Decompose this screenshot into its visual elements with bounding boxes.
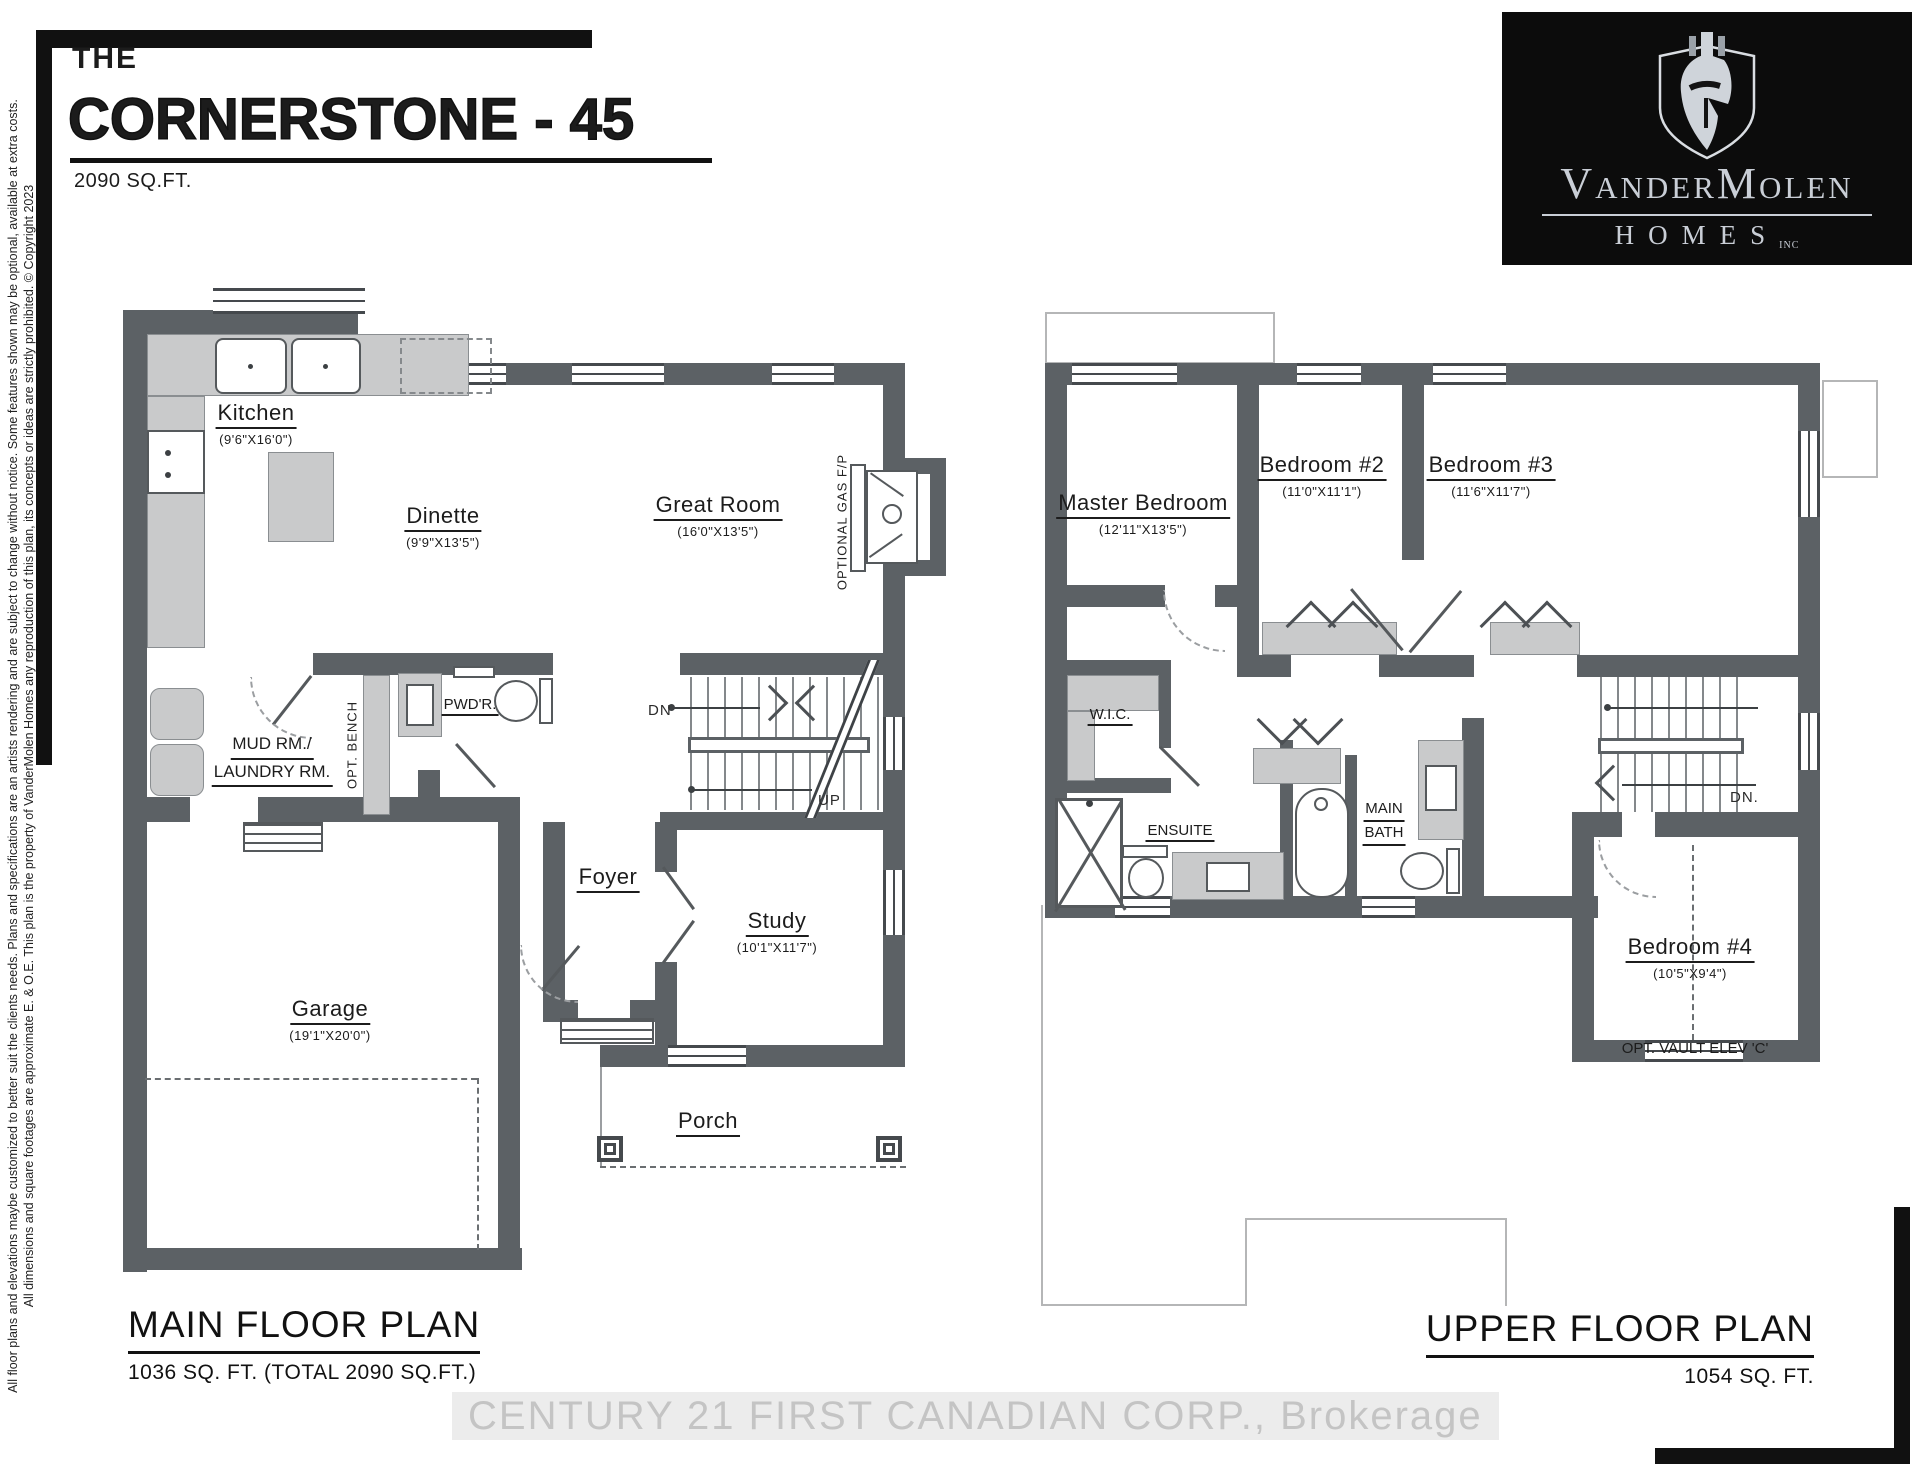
room-name: BATH: [1363, 822, 1406, 846]
wall: [498, 797, 520, 1270]
room-label-garage: Garage (19'1"X20'0"): [289, 996, 370, 1043]
towel-bar: [453, 666, 495, 678]
door-leaf: [455, 743, 496, 788]
room-label-master-bedroom: Master Bedroom (12'11"X13'5"): [1056, 490, 1230, 537]
sink-dot: [248, 364, 253, 369]
window: [572, 363, 664, 385]
wall: [1259, 655, 1291, 677]
wall: [1402, 385, 1424, 560]
wall: [600, 1045, 668, 1067]
builder-name: VanderMolen: [1502, 162, 1912, 206]
fridge-outline: [400, 338, 492, 394]
room-dims: (10'5"X9'4"): [1626, 966, 1755, 981]
toilet-bowl: [1400, 852, 1444, 890]
title-underline: [70, 158, 712, 163]
door-arc: [520, 945, 578, 1003]
shower-dot: [1086, 800, 1093, 807]
roof-line: [1505, 1220, 1507, 1306]
stairs-dn-label-upper: DN.: [1730, 789, 1759, 806]
total-sqft-label: 2090 SQ.FT.: [74, 170, 192, 193]
room-label-bedroom-4: Bedroom #4 (10'5"X9'4"): [1626, 934, 1755, 981]
wall: [1379, 655, 1412, 677]
room-name: W.I.C.: [1088, 706, 1133, 726]
window: [883, 870, 905, 935]
wall: [506, 363, 572, 385]
room-name: LAUNDRY RM.: [212, 760, 333, 788]
wall: [1159, 660, 1171, 748]
wall: [1412, 655, 1474, 677]
annotation: OPT. VAULT ELEV 'C': [1622, 1040, 1769, 1057]
kitchen-window-bump: [213, 288, 365, 314]
room-name: Kitchen: [216, 400, 297, 429]
wall: [1237, 385, 1259, 585]
range-dot: [165, 472, 171, 478]
room-name: Garage: [290, 996, 370, 1025]
window: [883, 717, 905, 770]
island: [268, 452, 334, 542]
upper-floor-plan-sqft: 1054 SQ. FT.: [1426, 1365, 1814, 1389]
wall: [1045, 585, 1165, 607]
window: [1297, 363, 1361, 385]
spartan-helmet-shield-icon: [1642, 32, 1772, 162]
room-dims: (9'6"X16'0"): [216, 432, 297, 447]
optional-gas-fireplace-label: OPTIONAL GAS F/P: [835, 454, 850, 590]
room-name: Bedroom #2: [1258, 452, 1387, 481]
room-label-dinette: Dinette (9'9"X13'5"): [404, 503, 481, 550]
roof-line: [1041, 1304, 1247, 1306]
sink-dot: [323, 364, 328, 369]
wall: [1594, 660, 1798, 677]
wall: [1655, 812, 1798, 837]
fireplace-circle: [882, 504, 902, 524]
room-name: Master Bedroom: [1056, 490, 1230, 519]
toilet-tank: [539, 678, 553, 724]
room-label-kitchen: Kitchen (9'6"X16'0"): [216, 400, 297, 447]
room-name: Porch: [676, 1108, 740, 1137]
plan-title: CORNERSTONE - 45: [68, 86, 634, 153]
garage-door-dash: [477, 1078, 481, 1250]
door-arc: [1163, 590, 1225, 652]
wall: [1798, 385, 1820, 431]
room-label-great-room: Great Room (16'0"X13'5"): [654, 492, 783, 539]
wall: [1237, 585, 1259, 677]
floor-plan-sheet: THE CORNERSTONE - 45 2090 SQ.FT. VanderM…: [0, 0, 1920, 1484]
french-door-leaf: [662, 920, 695, 964]
frame-top-left-vertical: [36, 30, 52, 765]
stair-line: [1622, 784, 1756, 786]
frame-bottom-right-vertical: [1894, 1207, 1910, 1464]
room-label-wic: W.I.C.: [1088, 706, 1133, 726]
garage-steps: [243, 822, 323, 852]
porch-post: [876, 1136, 902, 1162]
window: [1798, 431, 1820, 517]
dryer: [150, 744, 204, 796]
room-dims: (19'1"X20'0"): [289, 1028, 370, 1043]
toilet-tank: [1122, 845, 1168, 858]
disclaimer-line-1: All floor plans and elevations maybe cus…: [6, 30, 22, 1462]
hearth: [850, 464, 866, 572]
wall: [1177, 363, 1297, 385]
room-label-powder: PWD'R.: [442, 696, 499, 716]
ensuite-sink: [1206, 862, 1250, 892]
toilet-bowl: [494, 680, 538, 722]
toilet-bowl: [1128, 858, 1164, 898]
toilet-tank: [1446, 848, 1460, 894]
window: [1433, 363, 1506, 385]
porch-post: [597, 1136, 623, 1162]
opt-bench-label: OPT. BENCH: [345, 701, 360, 789]
room-label-bedroom-3: Bedroom #3 (11'6"X11'7"): [1427, 452, 1556, 499]
wall: [883, 562, 905, 717]
bath-sink: [1425, 765, 1457, 811]
window: [668, 1045, 746, 1067]
roof-line: [1245, 1218, 1507, 1220]
wall: [123, 1248, 522, 1270]
wall: [123, 797, 190, 822]
wall: [664, 363, 772, 385]
window: [1072, 363, 1177, 385]
wall: [1798, 517, 1820, 713]
window: [1798, 713, 1820, 770]
disclaimer-text: All floor plans and elevations maybe cus…: [6, 30, 37, 1462]
wall: [655, 822, 677, 872]
roof-outline: [1045, 312, 1275, 364]
room-label-foyer: Foyer: [577, 864, 640, 893]
builder-homes-label: HOMES: [1615, 220, 1780, 250]
room-name: Foyer: [577, 864, 640, 893]
french-door-leaf: [662, 866, 695, 910]
door-leaf: [1409, 590, 1463, 653]
door-arc: [1598, 840, 1656, 898]
door-arc: [250, 677, 312, 739]
builder-inc-label: INC: [1779, 240, 1799, 251]
logo-underline: [1542, 214, 1872, 216]
upper-floor-plan-title: UPPER FLOOR PLAN: [1426, 1308, 1814, 1358]
room-label-porch: Porch: [676, 1108, 740, 1137]
stair-line: [694, 789, 812, 791]
room-name: Bedroom #3: [1427, 452, 1556, 481]
room-label-bedroom-2: Bedroom #2 (11'0"X11'1"): [1258, 452, 1387, 499]
room-dims: (9'9"X13'5"): [404, 535, 481, 550]
closet-chevron: [1293, 695, 1344, 746]
main-floor-plan-title-block: MAIN FLOOR PLAN 1036 SQ. FT. (TOTAL 2090…: [128, 1304, 480, 1385]
wall: [1572, 812, 1594, 1062]
stair-line: [674, 707, 760, 709]
room-label-main-bath: MAIN BATH: [1363, 798, 1406, 846]
room-label-ensuite: ENSUITE: [1145, 822, 1214, 842]
wall: [1045, 660, 1171, 675]
room-name: Study: [746, 908, 809, 937]
room-label-mud-laundry: MUD RM./ LAUNDRY RM.: [212, 732, 333, 787]
room-dims: (16'0"X13'5"): [654, 524, 783, 539]
wall: [313, 653, 553, 675]
closet-shelf: [1253, 748, 1341, 784]
frame-bottom-right-horizontal: [1655, 1448, 1910, 1464]
room-name: Bedroom #4: [1626, 934, 1755, 963]
stair-line: [1610, 707, 1758, 709]
room-name: ENSUITE: [1145, 822, 1214, 842]
room-name: MUD RM./: [230, 732, 313, 760]
wall: [1506, 363, 1820, 385]
opt-vault-label: OPT. VAULT ELEV 'C': [1622, 1040, 1769, 1058]
wall: [1462, 718, 1484, 918]
room-dims: (11'6"X11'7"): [1427, 484, 1556, 499]
room-dims: (11'0"X11'1"): [1258, 484, 1387, 499]
roof-line: [1245, 1220, 1247, 1306]
powder-sink: [406, 684, 434, 726]
upper-floor-plan-title-block: UPPER FLOOR PLAN 1054 SQ. FT.: [1426, 1308, 1814, 1389]
room-dims: (12'11"X13'5"): [1056, 522, 1230, 537]
room-label-study: Study (10'1"X11'7"): [737, 908, 817, 955]
wall: [660, 812, 905, 830]
stair-rail: [1598, 738, 1744, 754]
washer: [150, 688, 204, 740]
wall: [1415, 896, 1598, 918]
brokerage-watermark: CENTURY 21 FIRST CANADIAN CORP., Brokera…: [452, 1392, 1499, 1440]
wall: [1361, 363, 1433, 385]
bench: [363, 675, 390, 815]
porch-steps: [560, 1018, 654, 1044]
room-name: MAIN: [1363, 798, 1405, 822]
wall: [1045, 778, 1171, 793]
main-floor-plan-sqft: 1036 SQ. FT. (TOTAL 2090 SQ.FT.): [128, 1361, 480, 1385]
stairs-dn-label: DN: [648, 702, 672, 719]
wall: [123, 310, 147, 1272]
wall: [930, 458, 946, 576]
main-floor-plan-title: MAIN FLOOR PLAN: [128, 1304, 480, 1354]
room-name: Great Room: [654, 492, 783, 521]
builder-logo: VanderMolen HOMESINC: [1502, 12, 1912, 265]
garage-door-dash: [145, 1078, 477, 1082]
room-name: Dinette: [404, 503, 481, 532]
window: [1362, 896, 1415, 918]
stairs-up-label: UP: [818, 792, 841, 809]
room-dims: (10'1"X11'7"): [737, 940, 817, 955]
tub-drain: [1314, 797, 1328, 811]
wall: [746, 1045, 905, 1067]
wall: [1594, 812, 1622, 837]
roof-outline: [1822, 380, 1878, 478]
range: [147, 430, 205, 494]
roof-line: [1041, 905, 1043, 1306]
wall: [883, 363, 905, 470]
window: [772, 363, 834, 385]
room-name: PWD'R.: [442, 696, 499, 716]
wall: [1798, 770, 1820, 1062]
disclaimer-line-2: All dimensions and square footages are a…: [22, 30, 38, 1462]
range-dot: [165, 450, 171, 456]
porch-dash: [600, 1166, 906, 1170]
plan-series-label: THE: [72, 42, 138, 76]
